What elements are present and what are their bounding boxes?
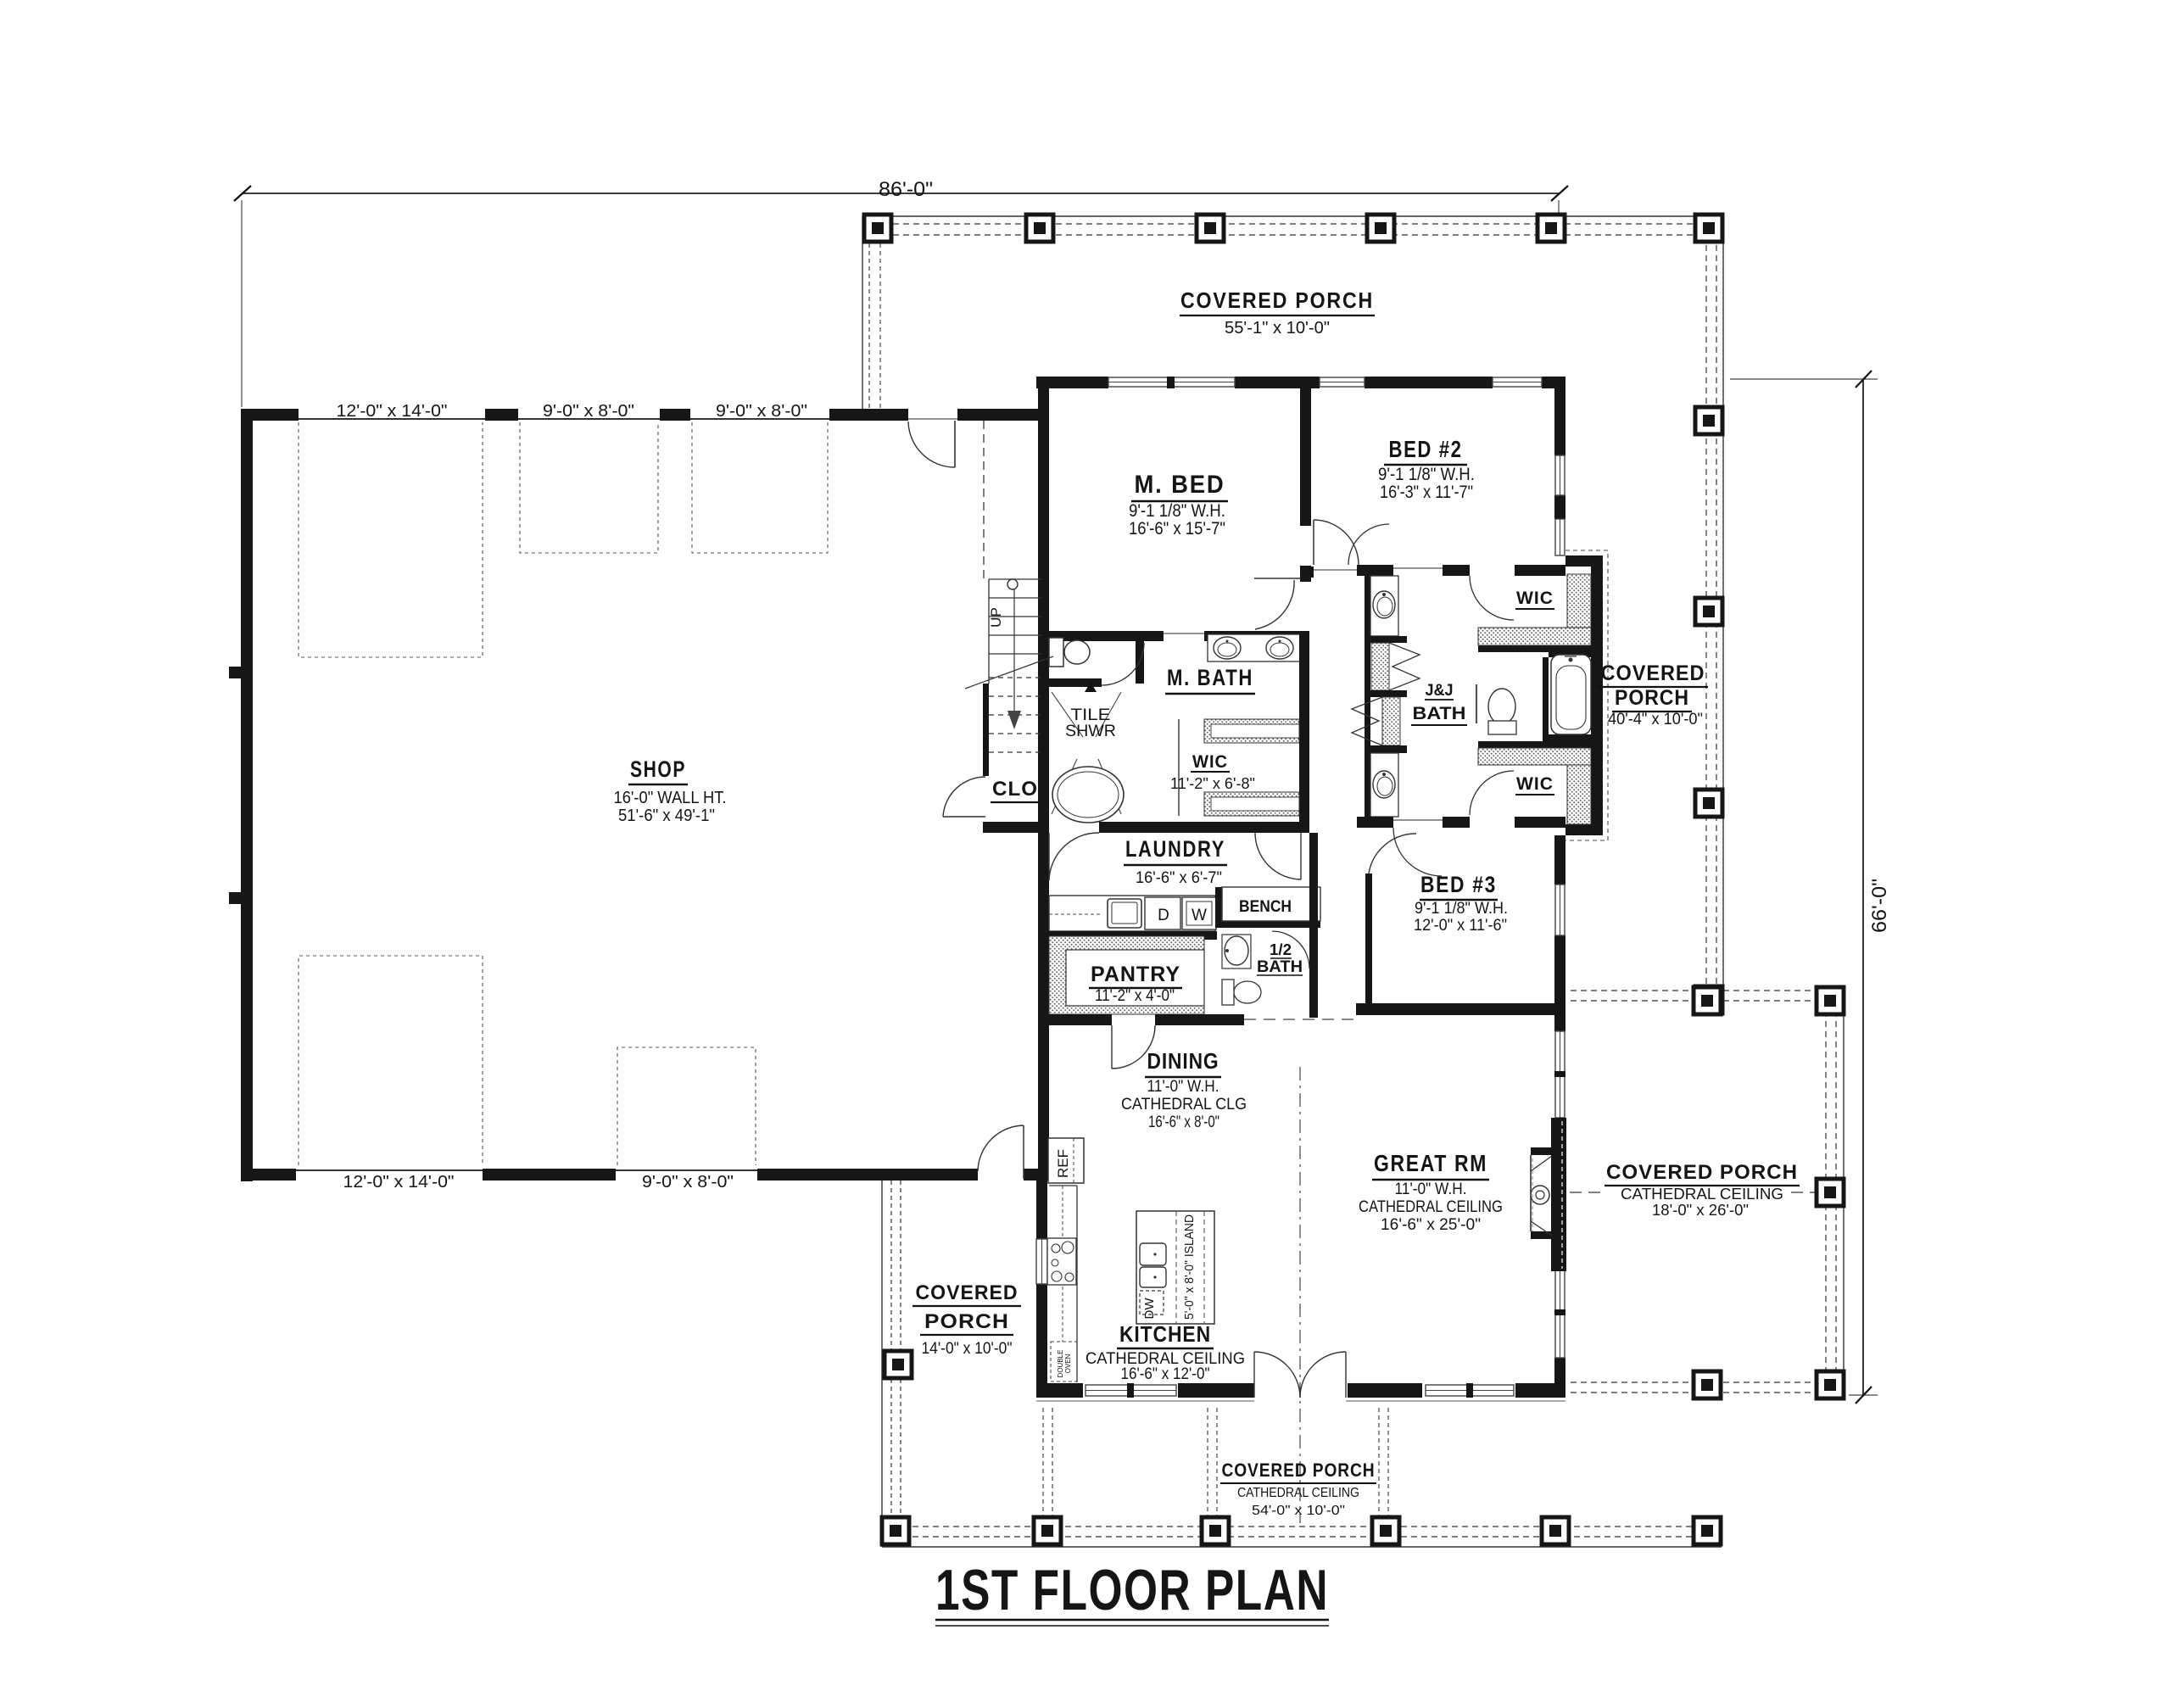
- svg-text:12'-0" x 14'-0": 12'-0" x 14'-0": [337, 402, 448, 421]
- svg-text:40'-4" x 10'-0": 40'-4" x 10'-0": [1608, 711, 1703, 728]
- svg-text:1ST FLOOR PLAN: 1ST FLOOR PLAN: [935, 1558, 1329, 1622]
- svg-text:55'-1" x 10'-0": 55'-1" x 10'-0": [1225, 319, 1330, 338]
- svg-text:18'-0" x 26'-0": 18'-0" x 26'-0": [1652, 1202, 1749, 1219]
- svg-text:DOUBLE: DOUBLE: [1057, 1350, 1064, 1378]
- svg-text:GREAT RM: GREAT RM: [1374, 1150, 1487, 1176]
- svg-text:14'-0" x 10'-0": 14'-0" x 10'-0": [922, 1340, 1013, 1358]
- svg-text:COVERED: COVERED: [916, 1281, 1019, 1304]
- svg-text:COVERED PORCH: COVERED PORCH: [1180, 287, 1374, 313]
- svg-text:16'-6" x 8'-0": 16'-6" x 8'-0": [1148, 1114, 1219, 1131]
- svg-text:PORCH: PORCH: [924, 1310, 1009, 1333]
- svg-text:9'-1 1/8" W.H.: 9'-1 1/8" W.H.: [1378, 465, 1475, 484]
- svg-text:W: W: [1192, 907, 1207, 924]
- svg-text:SHOP: SHOP: [630, 756, 686, 782]
- svg-text:9'-0" x 8'-0": 9'-0" x 8'-0": [543, 402, 634, 421]
- svg-text:16'-0" WALL HT.: 16'-0" WALL HT.: [614, 789, 727, 807]
- svg-text:51'-6" x 49'-1": 51'-6" x 49'-1": [618, 807, 715, 825]
- svg-text:9'-1 1/8" W.H.: 9'-1 1/8" W.H.: [1415, 900, 1508, 918]
- svg-text:12'-0" x 11'-6": 12'-0" x 11'-6": [1414, 917, 1507, 935]
- svg-text:11'-2" x 6'-8": 11'-2" x 6'-8": [1170, 775, 1255, 792]
- svg-text:16'-6" x 25'-0": 16'-6" x 25'-0": [1381, 1216, 1481, 1234]
- svg-text:86'-0": 86'-0": [879, 178, 933, 201]
- svg-text:1/2: 1/2: [1270, 941, 1292, 958]
- svg-text:9'-0" x 8'-0": 9'-0" x 8'-0": [642, 1173, 734, 1192]
- svg-text:CLO: CLO: [992, 778, 1038, 801]
- svg-text:SHWR: SHWR: [1065, 723, 1116, 740]
- svg-text:BED #3: BED #3: [1420, 872, 1497, 897]
- svg-text:PANTRY: PANTRY: [1091, 963, 1180, 986]
- svg-text:11'-2" x 4'-0": 11'-2" x 4'-0": [1095, 987, 1175, 1005]
- svg-text:5'-0" x 8'-0" ISLAND: 5'-0" x 8'-0" ISLAND: [1182, 1214, 1197, 1320]
- svg-text:CATHEDRAL CEILING: CATHEDRAL CEILING: [1359, 1198, 1503, 1216]
- svg-text:UP: UP: [988, 607, 1004, 628]
- svg-text:11'-0" W.H.: 11'-0" W.H.: [1395, 1181, 1467, 1198]
- svg-text:16'-6" x 6'-7": 16'-6" x 6'-7": [1136, 869, 1222, 887]
- svg-text:9'-1 1/8" W.H.: 9'-1 1/8" W.H.: [1129, 501, 1225, 521]
- svg-text:TILE: TILE: [1071, 706, 1111, 724]
- svg-text:BENCH: BENCH: [1239, 898, 1292, 916]
- svg-text:9'-0" x 8'-0": 9'-0" x 8'-0": [716, 402, 807, 421]
- svg-text:COVERED PORCH: COVERED PORCH: [1606, 1161, 1798, 1184]
- svg-text:CATHEDRAL CEILING: CATHEDRAL CEILING: [1621, 1186, 1783, 1203]
- svg-text:16'-6" x 12'-0": 16'-6" x 12'-0": [1121, 1365, 1210, 1383]
- svg-text:BED #2: BED #2: [1389, 436, 1463, 462]
- svg-text:REF: REF: [1055, 1149, 1071, 1178]
- svg-text:WIC: WIC: [1192, 752, 1228, 772]
- svg-text:KITCHEN: KITCHEN: [1119, 1321, 1211, 1347]
- svg-text:11'-0" W.H.: 11'-0" W.H.: [1147, 1078, 1219, 1096]
- svg-text:DINING: DINING: [1147, 1048, 1219, 1074]
- svg-text:WIC: WIC: [1516, 589, 1554, 608]
- svg-text:COVERED: COVERED: [1601, 661, 1705, 685]
- svg-text:M. BED: M. BED: [1135, 471, 1225, 499]
- svg-text:16'-3" x 11'-7": 16'-3" x 11'-7": [1380, 483, 1473, 502]
- svg-text:COVERED PORCH: COVERED PORCH: [1222, 1460, 1376, 1481]
- svg-text:12'-0" x 14'-0": 12'-0" x 14'-0": [343, 1173, 455, 1192]
- svg-text:PORCH: PORCH: [1615, 686, 1689, 710]
- svg-text:OVEN: OVEN: [1064, 1354, 1072, 1373]
- svg-text:16'-6" x 15'-7": 16'-6" x 15'-7": [1129, 519, 1225, 539]
- svg-text:66'-0": 66'-0": [1868, 879, 1891, 933]
- svg-text:BATH: BATH: [1413, 704, 1466, 723]
- svg-text:CATHEDRAL CLG: CATHEDRAL CLG: [1121, 1096, 1247, 1114]
- svg-text:DW: DW: [1142, 1298, 1157, 1320]
- svg-text:D: D: [1158, 907, 1169, 924]
- svg-text:M. BATH: M. BATH: [1167, 665, 1253, 690]
- svg-text:LAUNDRY: LAUNDRY: [1125, 836, 1225, 862]
- svg-text:54'-0" x 10'-0": 54'-0" x 10'-0": [1252, 1504, 1345, 1518]
- svg-text:BATH: BATH: [1257, 958, 1303, 976]
- svg-text:WIC: WIC: [1516, 774, 1554, 794]
- svg-text:J&J: J&J: [1426, 682, 1454, 700]
- svg-text:CATHEDRAL CEILING: CATHEDRAL CEILING: [1237, 1486, 1359, 1500]
